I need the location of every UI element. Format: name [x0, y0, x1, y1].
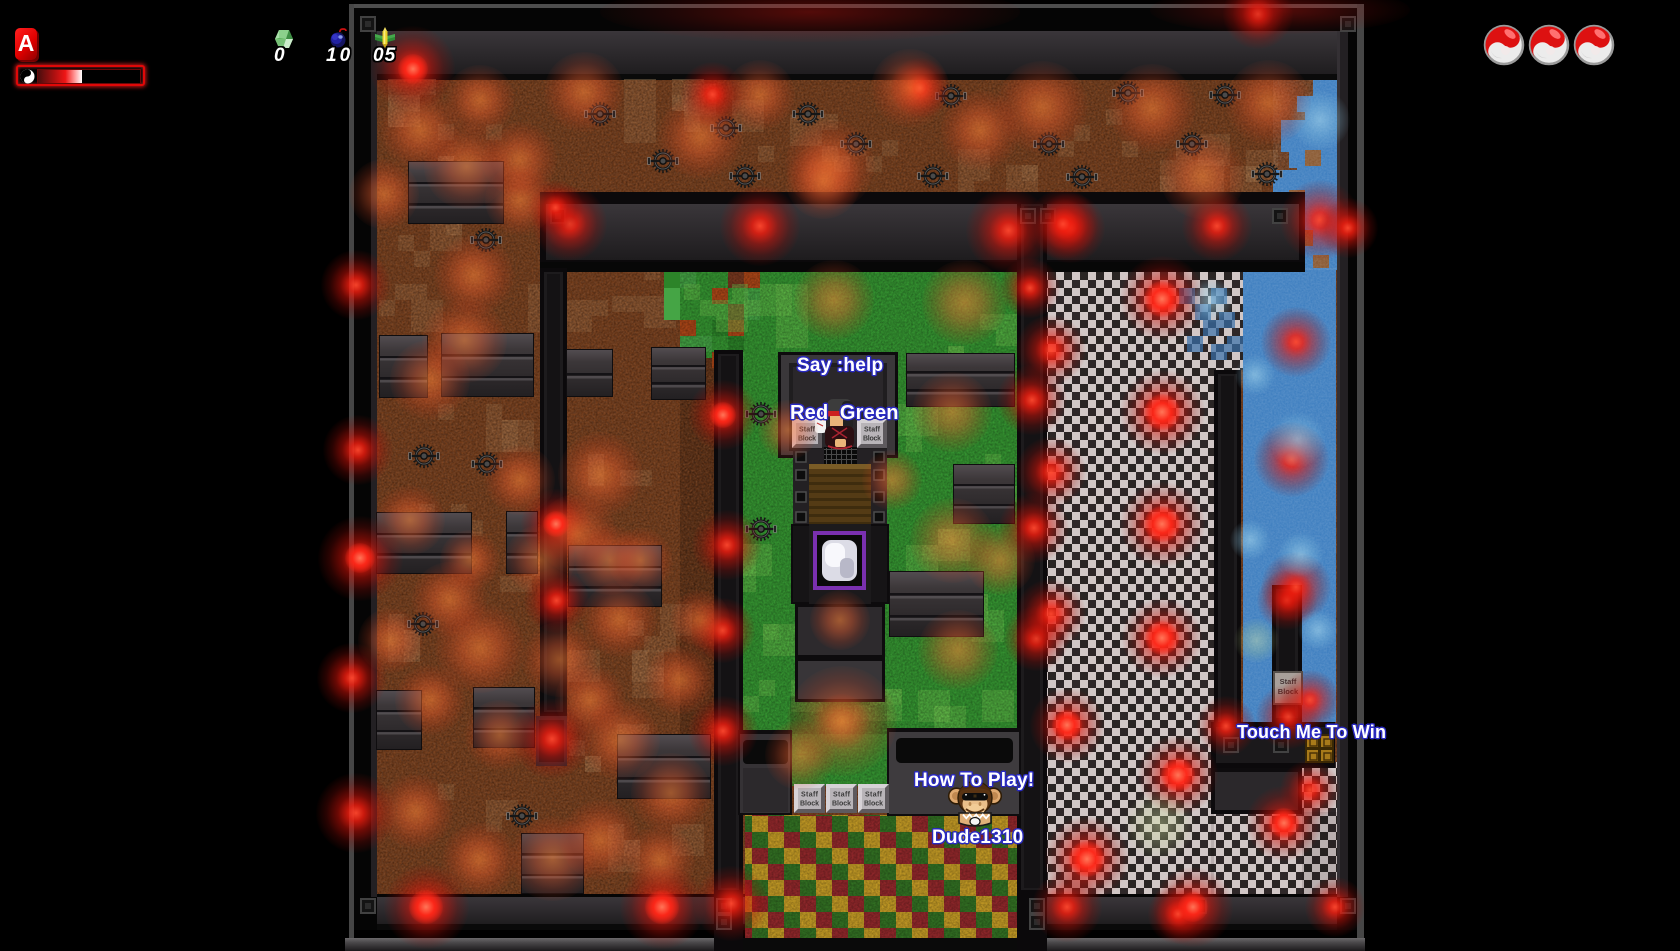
svg-text:Block: Block — [863, 436, 881, 443]
svg-text:Block: Block — [798, 436, 816, 443]
svg-text:Block: Block — [1278, 687, 1299, 696]
svg-text:Block: Block — [800, 801, 819, 808]
svg-text:Staff: Staff — [865, 792, 883, 799]
svg-text:Block: Block — [832, 801, 851, 808]
svg-text:Staff: Staff — [833, 792, 851, 799]
svg-text:Staff: Staff — [864, 427, 881, 434]
svg-text:Staff: Staff — [1280, 677, 1297, 686]
svg-text:Staff: Staff — [801, 792, 819, 799]
svg-text:Block: Block — [864, 801, 883, 808]
svg-text:Staff: Staff — [799, 427, 816, 434]
